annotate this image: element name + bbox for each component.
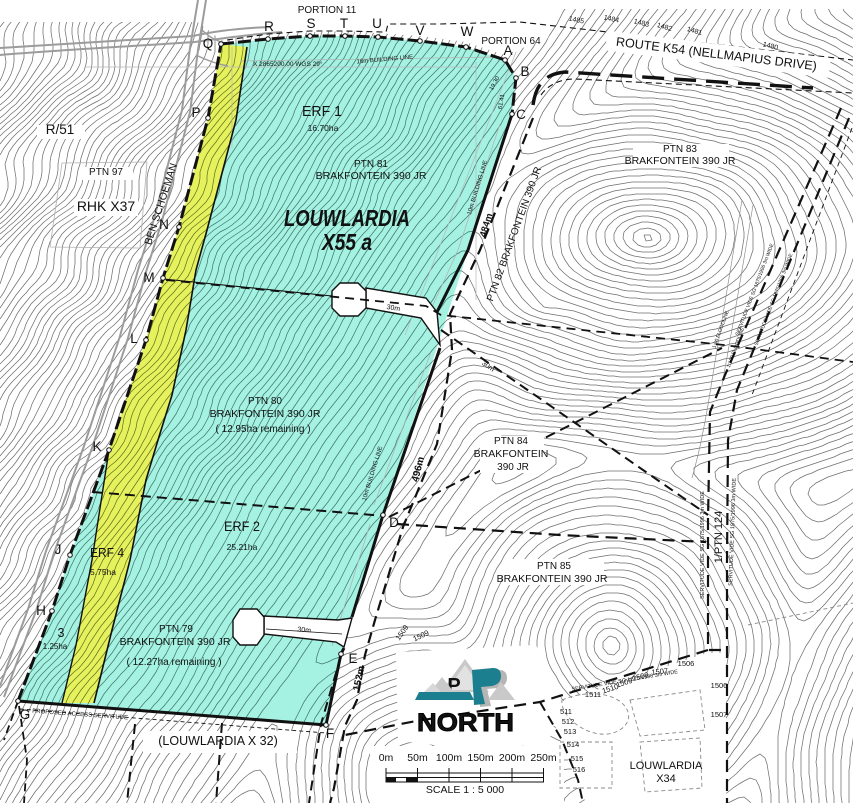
svg-text:511: 511 <box>560 707 572 716</box>
svg-text:X 2865200.00 WGS 29°: X 2865200.00 WGS 29° <box>253 60 323 68</box>
svg-text:U: U <box>372 16 382 31</box>
svg-text:5.75ha: 5.75ha <box>90 567 116 577</box>
svg-text:516: 516 <box>573 765 586 774</box>
svg-text:W: W <box>461 24 474 39</box>
svg-text:L: L <box>130 331 138 346</box>
svg-text:PTN 83: PTN 83 <box>663 144 697 155</box>
svg-text:16.70ha: 16.70ha <box>308 123 339 133</box>
svg-text:25.21ha: 25.21ha <box>227 542 258 552</box>
svg-text:SCALE 1 : 5 000: SCALE 1 : 5 000 <box>426 784 504 796</box>
svg-text:(LOUWLARDIA X 32): (LOUWLARDIA X 32) <box>158 734 277 748</box>
svg-text:PTN 85: PTN 85 <box>537 561 571 572</box>
svg-text:200m: 200m <box>499 752 526 764</box>
svg-text:LOUWLARDIA: LOUWLARDIA <box>284 205 410 231</box>
svg-text:1511: 1511 <box>585 690 601 699</box>
svg-text:1.25ha: 1.25ha <box>43 642 68 651</box>
svg-text:NORTH: NORTH <box>417 709 514 737</box>
svg-text:PTN 80: PTN 80 <box>248 396 282 407</box>
svg-text:100m: 100m <box>436 752 463 764</box>
svg-text:PORTION 11: PORTION 11 <box>298 5 357 16</box>
svg-text:513: 513 <box>564 727 577 736</box>
svg-text:512: 512 <box>562 717 575 726</box>
svg-text:BRAKFONTEIN: BRAKFONTEIN <box>474 448 549 460</box>
svg-text:( 12.95ha remaining ): ( 12.95ha remaining ) <box>215 424 310 435</box>
svg-text:B: B <box>520 64 529 79</box>
svg-text:BRAKFONTEIN 390 JR: BRAKFONTEIN 390 JR <box>625 155 736 167</box>
svg-text:1507: 1507 <box>711 710 728 719</box>
svg-text:PTN 97: PTN 97 <box>89 167 123 178</box>
svg-text:514: 514 <box>567 740 580 749</box>
svg-text:A: A <box>503 43 512 58</box>
svg-text:SERVITUDE VIDE SG 1875/1996 3: SERVITUDE VIDE SG 1875/1996 3m WIDE <box>700 491 706 599</box>
svg-text:J: J <box>55 542 62 557</box>
svg-text:G: G <box>20 707 31 722</box>
svg-text:PTN 84: PTN 84 <box>494 436 528 447</box>
svg-text:150m: 150m <box>467 752 494 764</box>
svg-text:ERF 2: ERF 2 <box>224 518 260 534</box>
svg-text:1506: 1506 <box>711 681 728 690</box>
svg-text:( 12.27ha remaining ): ( 12.27ha remaining ) <box>126 657 221 668</box>
svg-text:S: S <box>306 16 315 31</box>
svg-text:BRAKFONTEIN 390 JR: BRAKFONTEIN 390 JR <box>210 408 321 420</box>
svg-text:515: 515 <box>571 754 584 763</box>
svg-text:1/PTN 124: 1/PTN 124 <box>713 511 725 564</box>
svg-text:3: 3 <box>58 626 65 640</box>
svg-text:P: P <box>191 105 200 120</box>
svg-text:RHK X37: RHK X37 <box>77 198 136 214</box>
svg-text:M: M <box>143 270 154 285</box>
svg-text:T: T <box>340 16 348 31</box>
svg-text:K: K <box>92 439 101 454</box>
svg-text:R/51: R/51 <box>46 122 75 137</box>
svg-text:250m: 250m <box>530 752 557 764</box>
svg-text:50m: 50m <box>407 752 428 764</box>
svg-text:PTN 81: PTN 81 <box>354 159 388 170</box>
svg-text:F: F <box>326 726 334 741</box>
svg-text:D: D <box>389 515 399 530</box>
svg-text:LOUWLARDIA: LOUWLARDIA <box>630 760 703 772</box>
svg-text:R: R <box>264 19 274 34</box>
svg-text:PTN 79: PTN 79 <box>159 624 193 635</box>
svg-text:BRAKFONTEIN 390 JR: BRAKFONTEIN 390 JR <box>316 170 427 182</box>
svg-text:X55 a: X55 a <box>320 229 372 255</box>
svg-text:ERF 4: ERF 4 <box>90 545 124 560</box>
svg-text:H: H <box>36 603 46 618</box>
svg-text:1507: 1507 <box>651 666 669 677</box>
svg-text:0m: 0m <box>379 752 394 764</box>
svg-text:C: C <box>516 107 526 122</box>
svg-text:V: V <box>415 23 424 38</box>
svg-text:E: E <box>348 651 357 666</box>
svg-text:30m: 30m <box>297 626 311 634</box>
svg-text:1506: 1506 <box>678 659 695 668</box>
svg-text:BRAKFONTEIN 390 JR: BRAKFONTEIN 390 JR <box>497 573 608 585</box>
svg-text:ERF 1: ERF 1 <box>302 103 342 120</box>
svg-text:Q: Q <box>203 36 214 51</box>
svg-text:390 JR: 390 JR <box>497 462 529 473</box>
svg-text:BRAKFONTEIN 390 JR: BRAKFONTEIN 390 JR <box>120 636 231 648</box>
svg-text:X34: X34 <box>656 773 676 785</box>
